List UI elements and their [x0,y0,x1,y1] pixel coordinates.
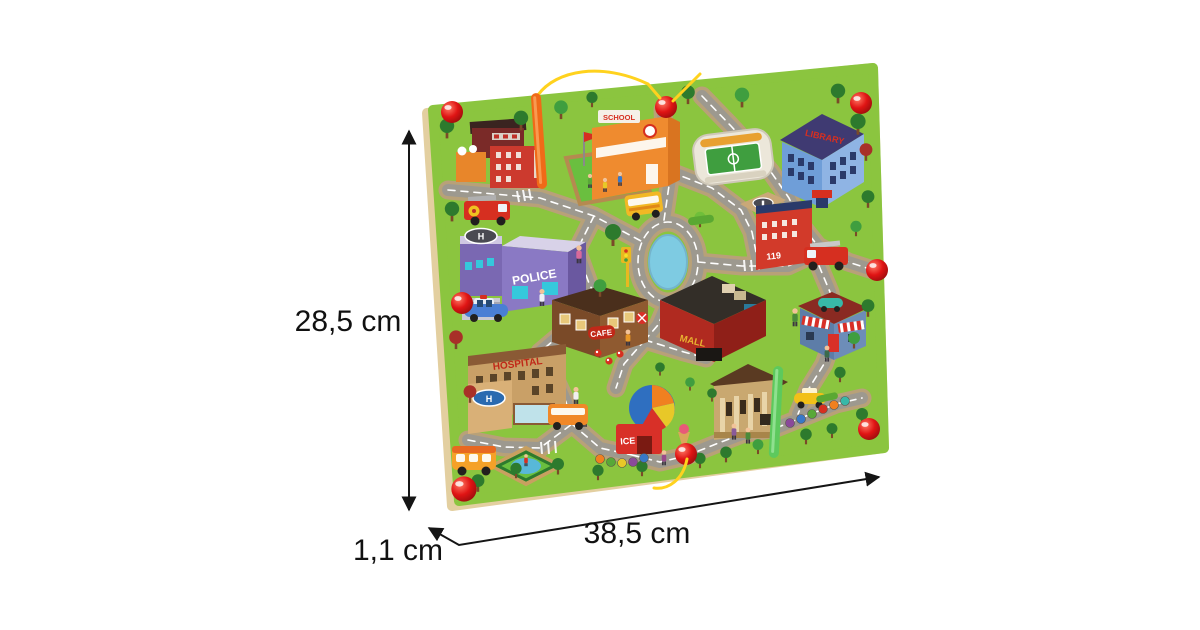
ice-sign: ICE [620,435,636,446]
school-sign: SCHOOL [603,113,636,122]
height-dimension-label: 28,5 cm [295,305,402,338]
scene-canvas: SCHOOL LIBRARY H [0,0,1200,630]
thickness-dimension-label: 1,1 cm [353,534,443,567]
width-dimension-label: 38,5 cm [584,517,691,550]
helipad-h: H [478,232,485,242]
roundabout-pond [649,235,687,289]
product-photo-magnetic-maze-board: SCHOOL LIBRARY H [0,0,1200,630]
helipad-h: H [486,394,493,404]
fire-hq-number: 119 [766,250,781,261]
school-clock [644,125,656,137]
stadium [691,127,775,186]
